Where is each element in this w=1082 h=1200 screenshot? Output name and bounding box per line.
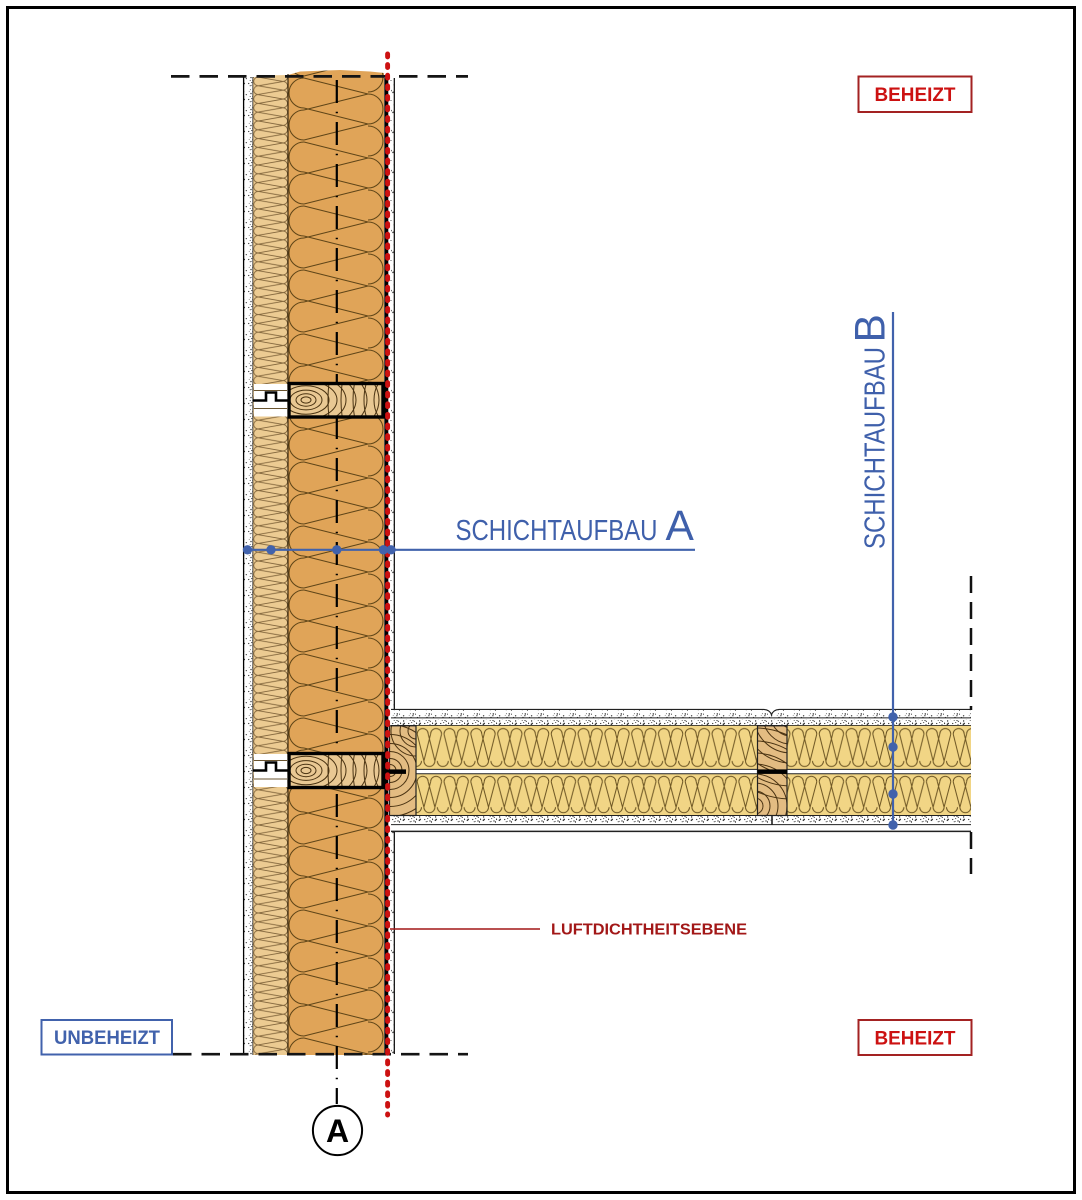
svg-text:SCHICHTAUFBAU: SCHICHTAUFBAU xyxy=(860,347,892,549)
svg-text:A: A xyxy=(326,1113,349,1149)
svg-text:LUFTDICHTHEITSEBENE: LUFTDICHTHEITSEBENE xyxy=(551,922,747,939)
svg-text:BEHEIZT: BEHEIZT xyxy=(875,1029,956,1050)
svg-text:B: B xyxy=(848,314,895,342)
svg-text:UNBEHEIZT: UNBEHEIZT xyxy=(54,1028,160,1049)
svg-text:A: A xyxy=(666,503,695,550)
svg-text:SCHICHTAUFBAU: SCHICHTAUFBAU xyxy=(456,515,658,547)
svg-text:BEHEIZT: BEHEIZT xyxy=(875,85,956,106)
